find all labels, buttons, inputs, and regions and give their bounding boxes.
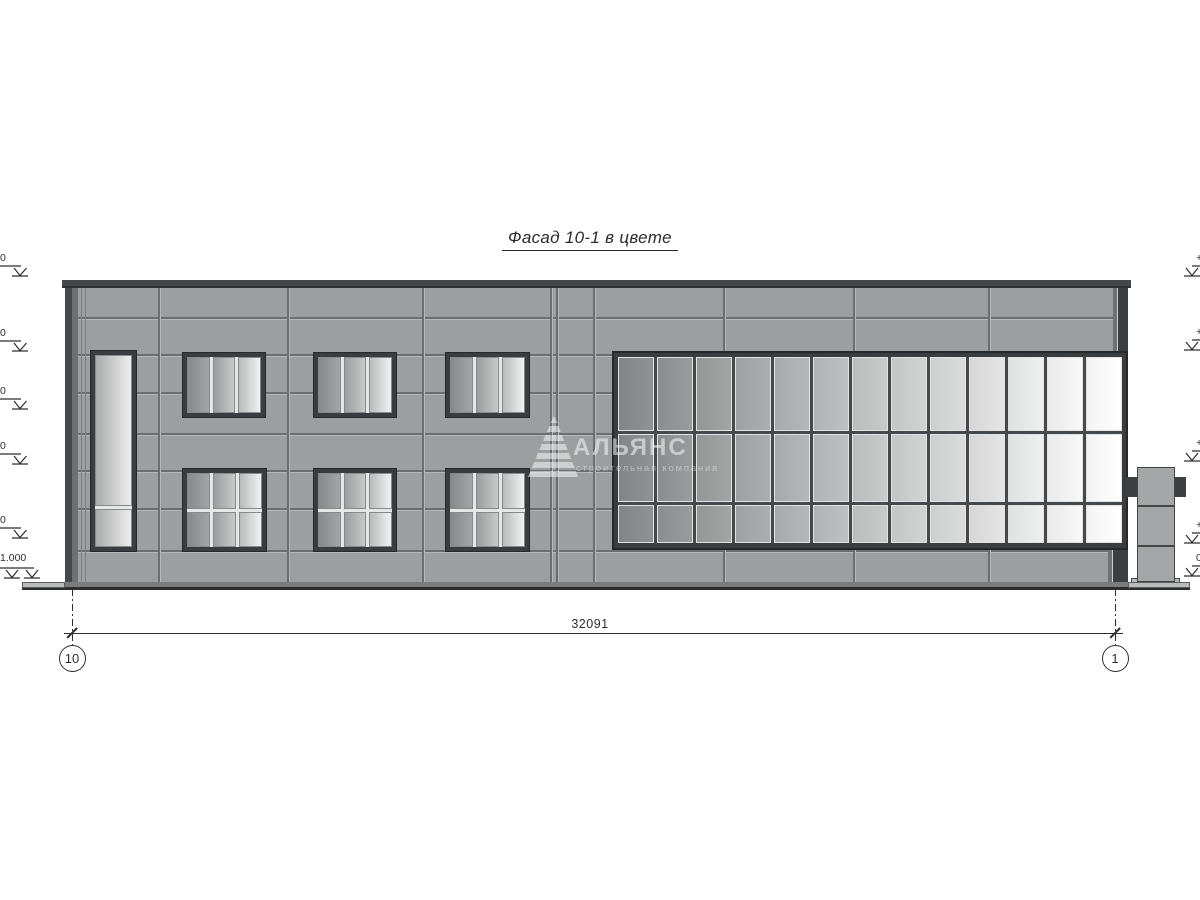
- elevation-mark-right: +: [1184, 517, 1200, 547]
- grid-extension-line: [72, 589, 73, 646]
- grid-bubble-10: 10: [59, 645, 86, 672]
- elevation-value: 0: [0, 385, 6, 397]
- elevation-value: +: [1196, 519, 1200, 531]
- elevation-mark-left: 0: [0, 383, 40, 413]
- elevation-mark-left: 0: [0, 250, 40, 280]
- elevation-mark-left: 0: [0, 438, 40, 468]
- elevation-value: 1.000: [0, 552, 26, 564]
- elevation-mark-right: 0: [1184, 550, 1200, 580]
- dimension-value: 32091: [440, 617, 740, 631]
- elevation-value: +: [1196, 437, 1200, 449]
- annotations: 32091 101000001.000++++0: [0, 0, 1200, 900]
- elevation-value: 0: [0, 252, 6, 264]
- elevation-mark-left: 0: [0, 325, 40, 355]
- elevation-value: 0: [0, 440, 6, 452]
- elevation-mark-left: 0: [0, 512, 40, 542]
- elevation-value: +: [1196, 252, 1200, 264]
- elevation-mark-right: +: [1184, 250, 1200, 280]
- elevation-value: 0: [0, 514, 6, 526]
- elevation-value: +: [1196, 326, 1200, 338]
- dimension-line: [64, 633, 1123, 634]
- elevation-value: 0: [0, 327, 6, 339]
- elevation-mark-left: 1.000: [0, 550, 44, 580]
- elevation-value: 0: [1196, 552, 1200, 564]
- facade-drawing-sheet: Фасад 10-1 в цвете АЛЬЯНС строительная к…: [0, 0, 1200, 900]
- elevation-mark-right: +: [1184, 435, 1200, 465]
- grid-bubble-1: 1: [1102, 645, 1129, 672]
- elevation-mark-right: +: [1184, 324, 1200, 354]
- grid-extension-line: [1115, 589, 1116, 646]
